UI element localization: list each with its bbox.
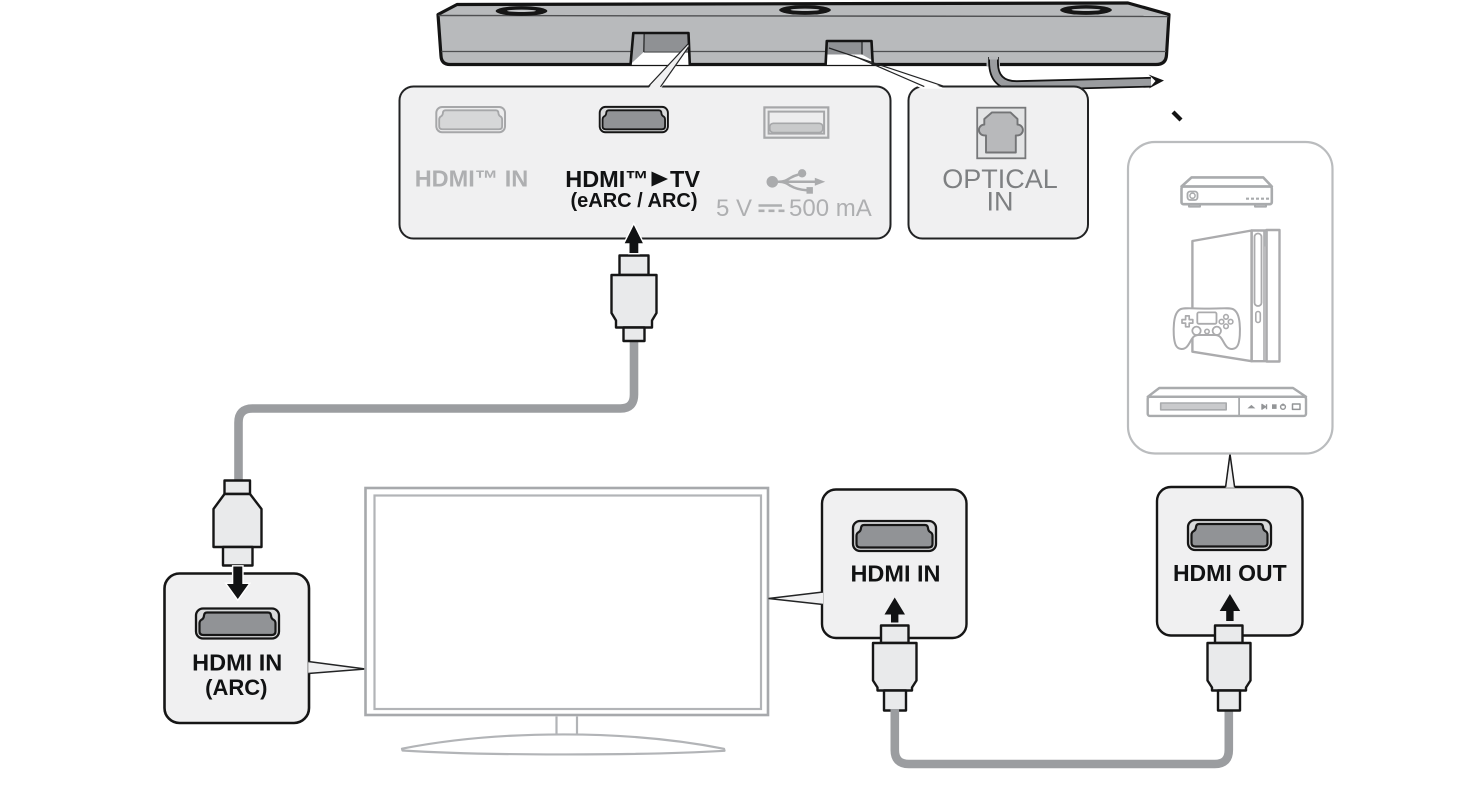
svg-text:HDMI IN: HDMI IN <box>850 560 940 586</box>
svg-text:IN: IN <box>987 187 1014 217</box>
svg-text:5 V: 5 V <box>716 195 752 222</box>
svg-text:(ARC): (ARC) <box>205 675 267 700</box>
svg-text:(eARC / ARC): (eARC / ARC) <box>570 190 697 212</box>
svg-text:HDMI IN: HDMI IN <box>192 649 282 675</box>
svg-text:TV: TV <box>670 166 700 192</box>
svg-text:HDMI OUT: HDMI OUT <box>1173 560 1287 586</box>
svg-text:HDMI™: HDMI™ <box>565 166 649 192</box>
svg-text:HDMI™ IN: HDMI™ IN <box>415 166 529 192</box>
svg-text:500 mA: 500 mA <box>789 195 872 222</box>
